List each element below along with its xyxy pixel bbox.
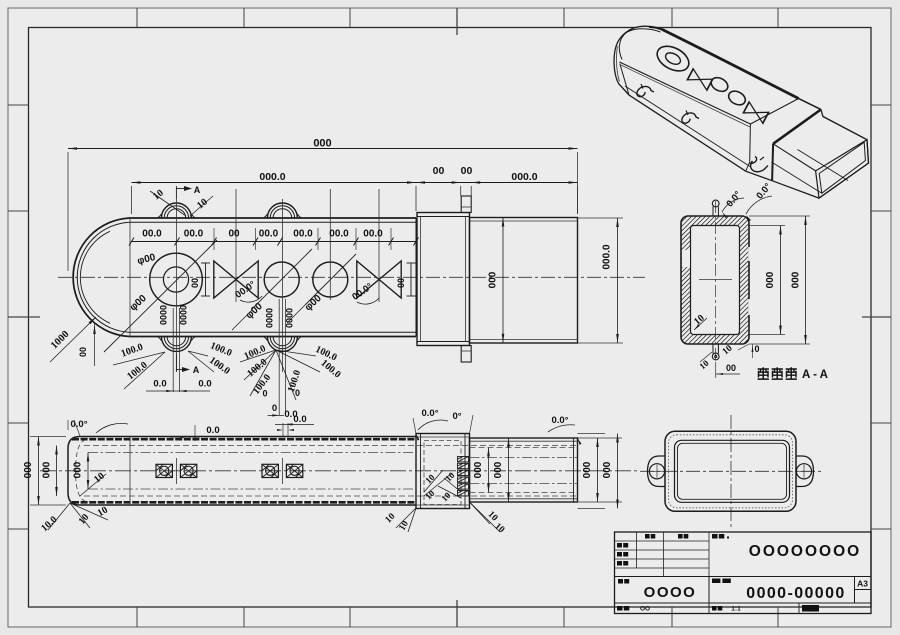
- svg-text:0.0°: 0.0°: [551, 415, 568, 426]
- svg-text:0000: 0000: [159, 305, 169, 325]
- svg-text:00: 00: [78, 347, 88, 357]
- svg-text:000: 000: [42, 461, 53, 478]
- svg-text:0000: 0000: [265, 308, 275, 328]
- svg-text:0: 0: [262, 389, 267, 399]
- svg-text:0.0: 0.0: [198, 379, 211, 390]
- svg-text:00: 00: [461, 165, 473, 177]
- svg-text:00.0: 00.0: [142, 229, 162, 240]
- svg-text:0: 0: [754, 344, 759, 354]
- svg-text:000: 000: [791, 271, 802, 288]
- svg-text:00.0: 00.0: [259, 229, 279, 240]
- svg-text:00.0: 00.0: [293, 229, 313, 240]
- svg-text:00: 00: [228, 229, 240, 240]
- svg-text:0.0°: 0.0°: [421, 408, 438, 419]
- svg-text:00: 00: [726, 363, 736, 373]
- svg-text:00.0: 00.0: [329, 229, 349, 240]
- svg-text:000: 000: [313, 138, 331, 150]
- svg-text:A: A: [193, 365, 200, 375]
- svg-text:000.0: 000.0: [602, 244, 613, 269]
- svg-text:000.0: 000.0: [511, 171, 537, 183]
- svg-text:000: 000: [488, 271, 499, 288]
- svg-text:A - A: A - A: [802, 369, 828, 381]
- svg-text:0: 0: [295, 388, 300, 398]
- svg-text:0.0: 0.0: [206, 425, 219, 436]
- svg-text:000: 000: [765, 271, 776, 288]
- svg-text:000: 000: [23, 461, 34, 478]
- svg-text:00.0: 00.0: [363, 229, 383, 240]
- svg-text:000: 000: [73, 461, 84, 478]
- svg-text:0000-00000: 0000-00000: [746, 585, 845, 602]
- svg-text:0.0: 0.0: [284, 409, 297, 420]
- svg-text:0000: 0000: [285, 308, 295, 328]
- svg-text:00.0: 00.0: [184, 229, 204, 240]
- svg-text:A3: A3: [857, 579, 868, 589]
- svg-text:0000: 0000: [179, 305, 189, 325]
- svg-text:OO: OO: [640, 606, 650, 613]
- svg-text:1:1: 1:1: [731, 606, 741, 613]
- svg-text:000: 000: [493, 461, 504, 478]
- svg-text:A: A: [194, 185, 201, 195]
- svg-text:00: 00: [433, 165, 445, 177]
- svg-text:0°: 0°: [452, 411, 461, 422]
- svg-text:0.0°: 0.0°: [70, 419, 87, 430]
- svg-text:0: 0: [272, 403, 277, 414]
- svg-text:00: 00: [190, 278, 200, 288]
- svg-text:000: 000: [473, 461, 484, 478]
- svg-text:000: 000: [602, 461, 613, 478]
- svg-text:000.0: 000.0: [259, 171, 285, 183]
- svg-text:OOOOOOOO: OOOOOOOO: [749, 543, 861, 560]
- svg-text:000: 000: [582, 461, 593, 478]
- svg-text:OOOO: OOOO: [644, 584, 697, 601]
- svg-text:00: 00: [396, 278, 406, 288]
- svg-text:0.0: 0.0: [153, 379, 166, 390]
